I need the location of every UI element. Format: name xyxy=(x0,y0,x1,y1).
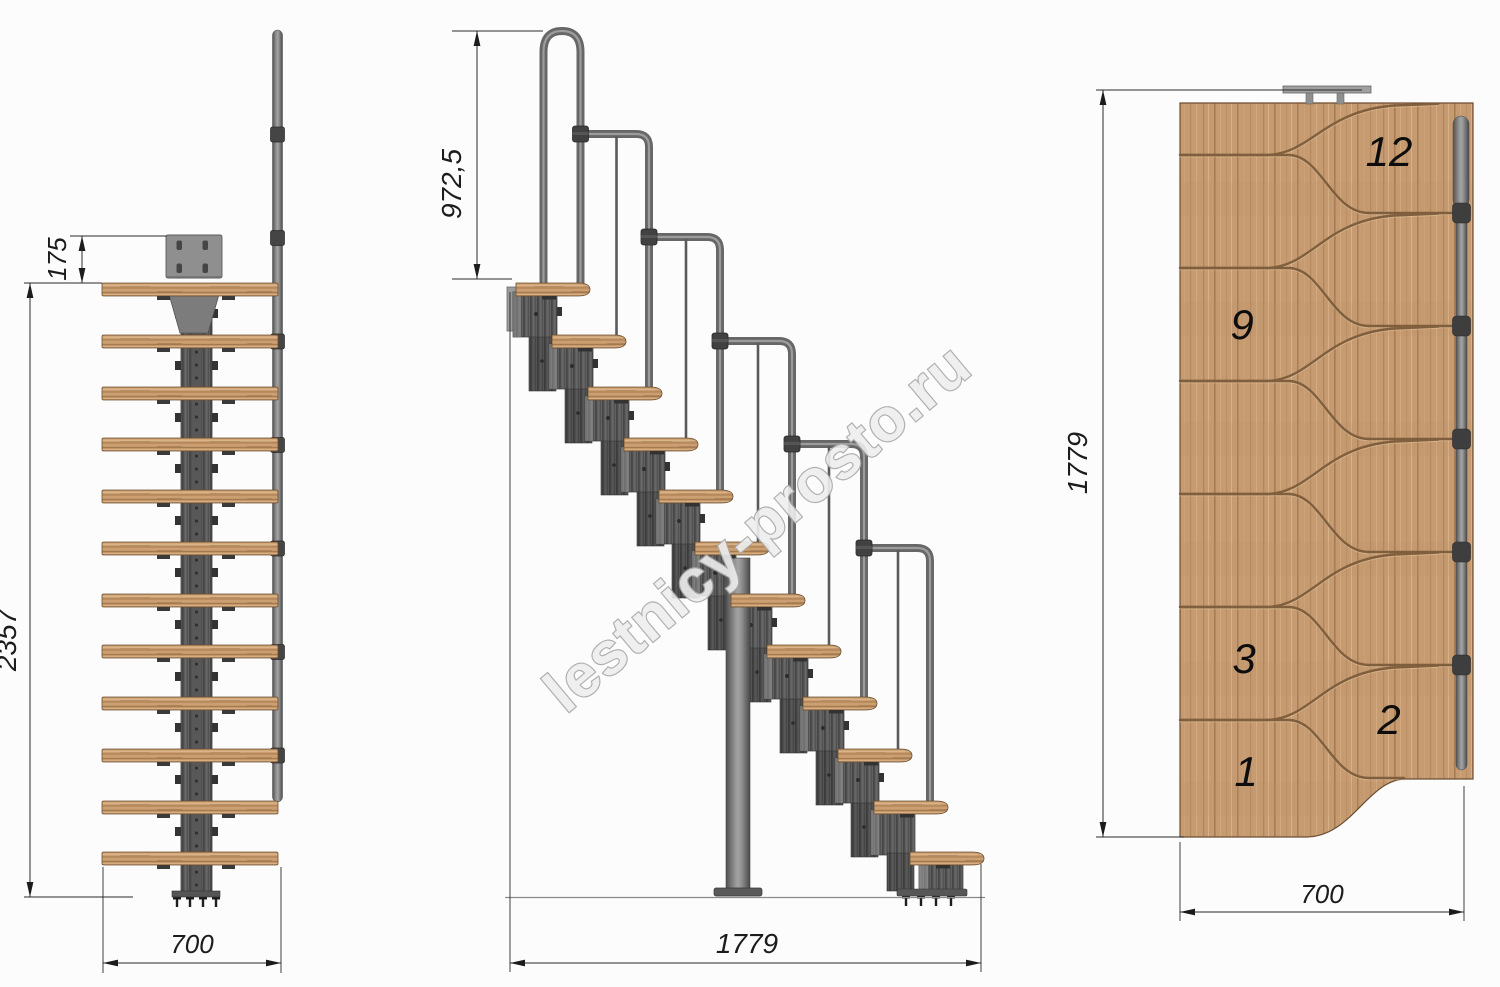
drawing-page: 175 2357 700 xyxy=(0,0,1500,987)
dimension-bracket-offset: 175 xyxy=(24,236,167,283)
dimension-handrail-height: 972,5 xyxy=(436,31,543,279)
step-number-2: 2 xyxy=(1376,696,1400,743)
plan-view: 12 9 3 2 1 1779 xyxy=(1062,86,1473,921)
handrail-plan xyxy=(1453,116,1471,770)
dim-972-label: 972,5 xyxy=(436,149,467,219)
step-number-1: 1 xyxy=(1234,748,1257,795)
dim-700-front-label: 700 xyxy=(170,929,214,959)
column-base xyxy=(172,891,220,907)
wall-plate xyxy=(166,235,222,278)
staircase-technical-drawing: 175 2357 700 xyxy=(0,0,1500,987)
front-view: 175 2357 700 xyxy=(0,30,285,973)
step-number-9: 9 xyxy=(1230,301,1253,348)
rail-clamp xyxy=(573,126,589,142)
step-number-12: 12 xyxy=(1366,128,1413,175)
wall-bracket-plan xyxy=(1283,86,1371,104)
rail-clamp xyxy=(856,540,872,556)
dim-175-label: 175 xyxy=(42,237,72,281)
dim-700-plan-label: 700 xyxy=(1300,879,1344,909)
rail-clamp xyxy=(712,333,728,349)
side-view: 972,5 1779 xyxy=(436,31,985,972)
dim-2357-label: 2357 xyxy=(0,607,22,672)
rail-clamp xyxy=(641,229,657,245)
step-number-3: 3 xyxy=(1232,635,1255,682)
dim-1779-side-label: 1779 xyxy=(716,928,778,959)
dim-1779-plan-label: 1779 xyxy=(1062,432,1093,494)
handrail-post-front xyxy=(271,30,285,802)
